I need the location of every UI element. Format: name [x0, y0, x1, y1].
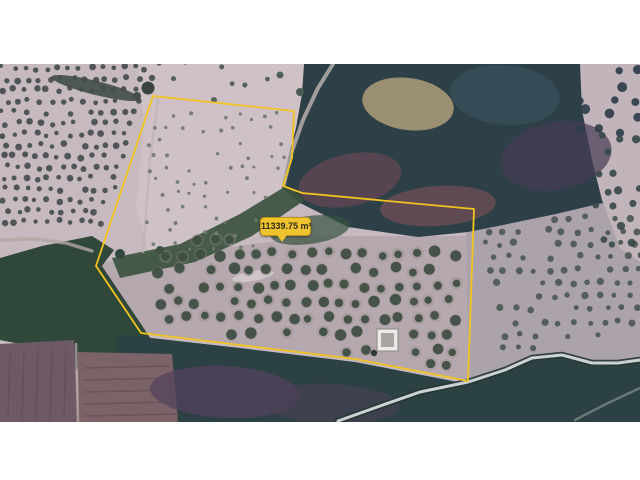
- tree-blob: [133, 92, 141, 100]
- screenshot-canvas: 11339.75 m²: [0, 0, 640, 480]
- tree-blob: [142, 82, 155, 95]
- tree-blob: [371, 350, 377, 356]
- tree-blob: [156, 246, 164, 254]
- label-tail: [277, 235, 287, 242]
- satellite-imagery: [0, 0, 640, 480]
- tree-blob: [296, 88, 304, 96]
- satellite-map-viewport[interactable]: 11339.75 m²: [0, 0, 640, 480]
- area-measurement-label: 11339.75 m²: [260, 217, 311, 236]
- tree-blob: [115, 249, 125, 259]
- area-value: 11339.75 m²: [261, 221, 312, 231]
- imagery-layers: [0, 60, 640, 427]
- building-roof: [381, 333, 394, 347]
- tree-blob: [277, 72, 284, 79]
